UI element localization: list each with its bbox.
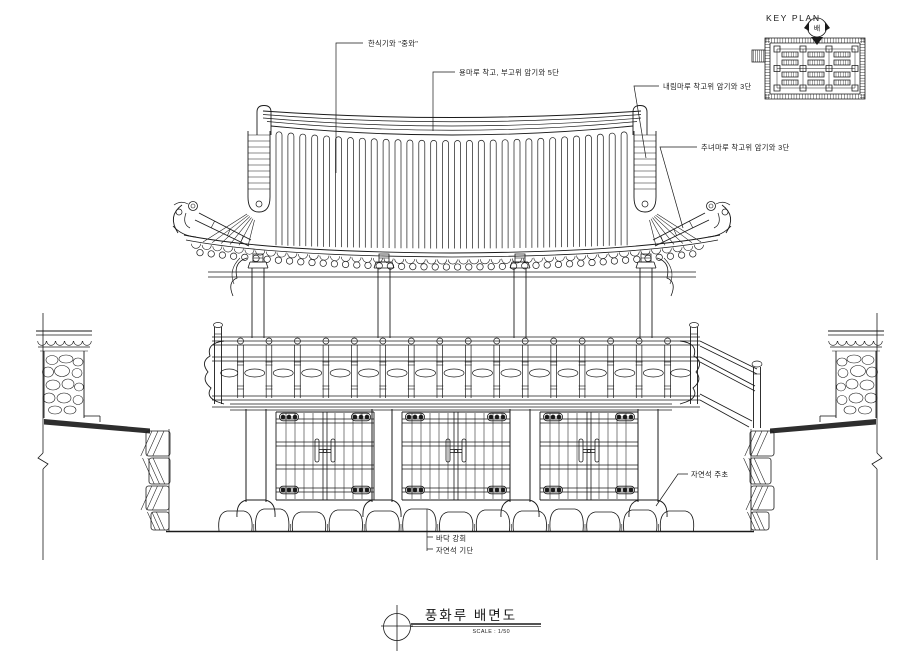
stair-railing: [700, 341, 762, 428]
annotation-labels: 한식기와 "중와" 용마루 착고, 부고위 암기와 5단 내림마루 착고위 암기…: [368, 39, 789, 555]
direction-marker-label: 배: [814, 24, 820, 33]
annotation-floor-finish: 바닥 강회: [436, 534, 466, 543]
drawing-title: 풍화루 배면도: [425, 608, 517, 623]
leader-hip-ridge: [660, 147, 697, 228]
gate-doors: [237, 409, 667, 517]
upper-structure: [248, 254, 656, 338]
annotation-column-base: 자연석 주초: [691, 470, 728, 479]
annotation-descending-ridge: 내림마루 착고위 암기와 3단: [663, 82, 751, 91]
annotation-roof-tiles: 한식기와 "중와": [368, 39, 418, 48]
direction-wing-right-icon: [825, 22, 830, 32]
railing-band: [204, 323, 700, 411]
title-block: 풍화루 배면도 SCALE : 1/50: [381, 605, 541, 651]
right-wall-section: [744, 313, 884, 560]
left-wall-section: [36, 313, 170, 560]
annotation-stylobate: 자연석 기단: [436, 546, 473, 555]
stone-platform: [166, 509, 754, 532]
drawing-sheet: KEY PLAN 배 한식기와 "중와" 용마루 착고, 부고위 암기와 5단 …: [0, 0, 920, 651]
leader-main-ridge: [433, 72, 455, 131]
drawing-scale: SCALE : 1/50: [473, 629, 510, 635]
roof: [173, 106, 731, 297]
elevation-drawing: KEY PLAN 배 한식기와 "중와" 용마루 착고, 부고위 암기와 5단 …: [0, 0, 920, 651]
title-marker: [381, 605, 413, 651]
annotation-main-ridge: 용마루 착고, 부고위 암기와 5단: [459, 68, 559, 77]
leader-floor-stylobate: [427, 509, 433, 551]
key-plan-title: KEY PLAN: [766, 13, 821, 23]
key-plan: KEY PLAN 배: [752, 13, 865, 99]
annotation-hip-ridge: 추녀마루 착고위 암기와 3단: [701, 143, 789, 152]
key-plan-drawing: [752, 38, 865, 99]
